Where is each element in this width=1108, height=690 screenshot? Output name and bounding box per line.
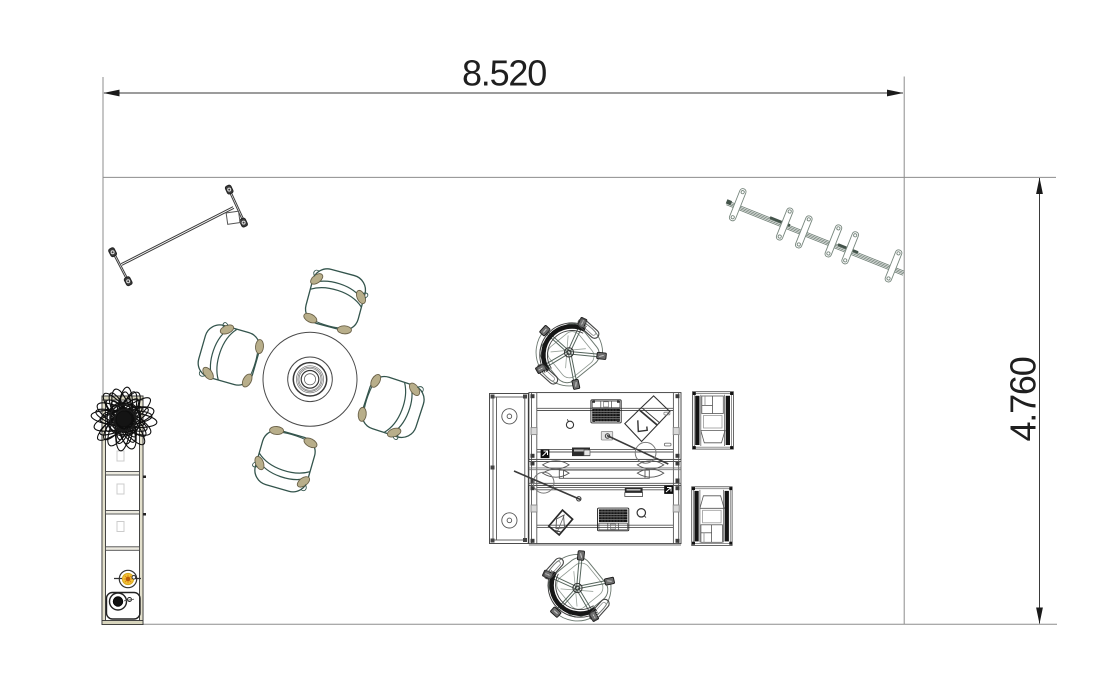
svg-text:4.760: 4.760 — [1003, 357, 1044, 441]
svg-text:8.520: 8.520 — [462, 53, 546, 94]
